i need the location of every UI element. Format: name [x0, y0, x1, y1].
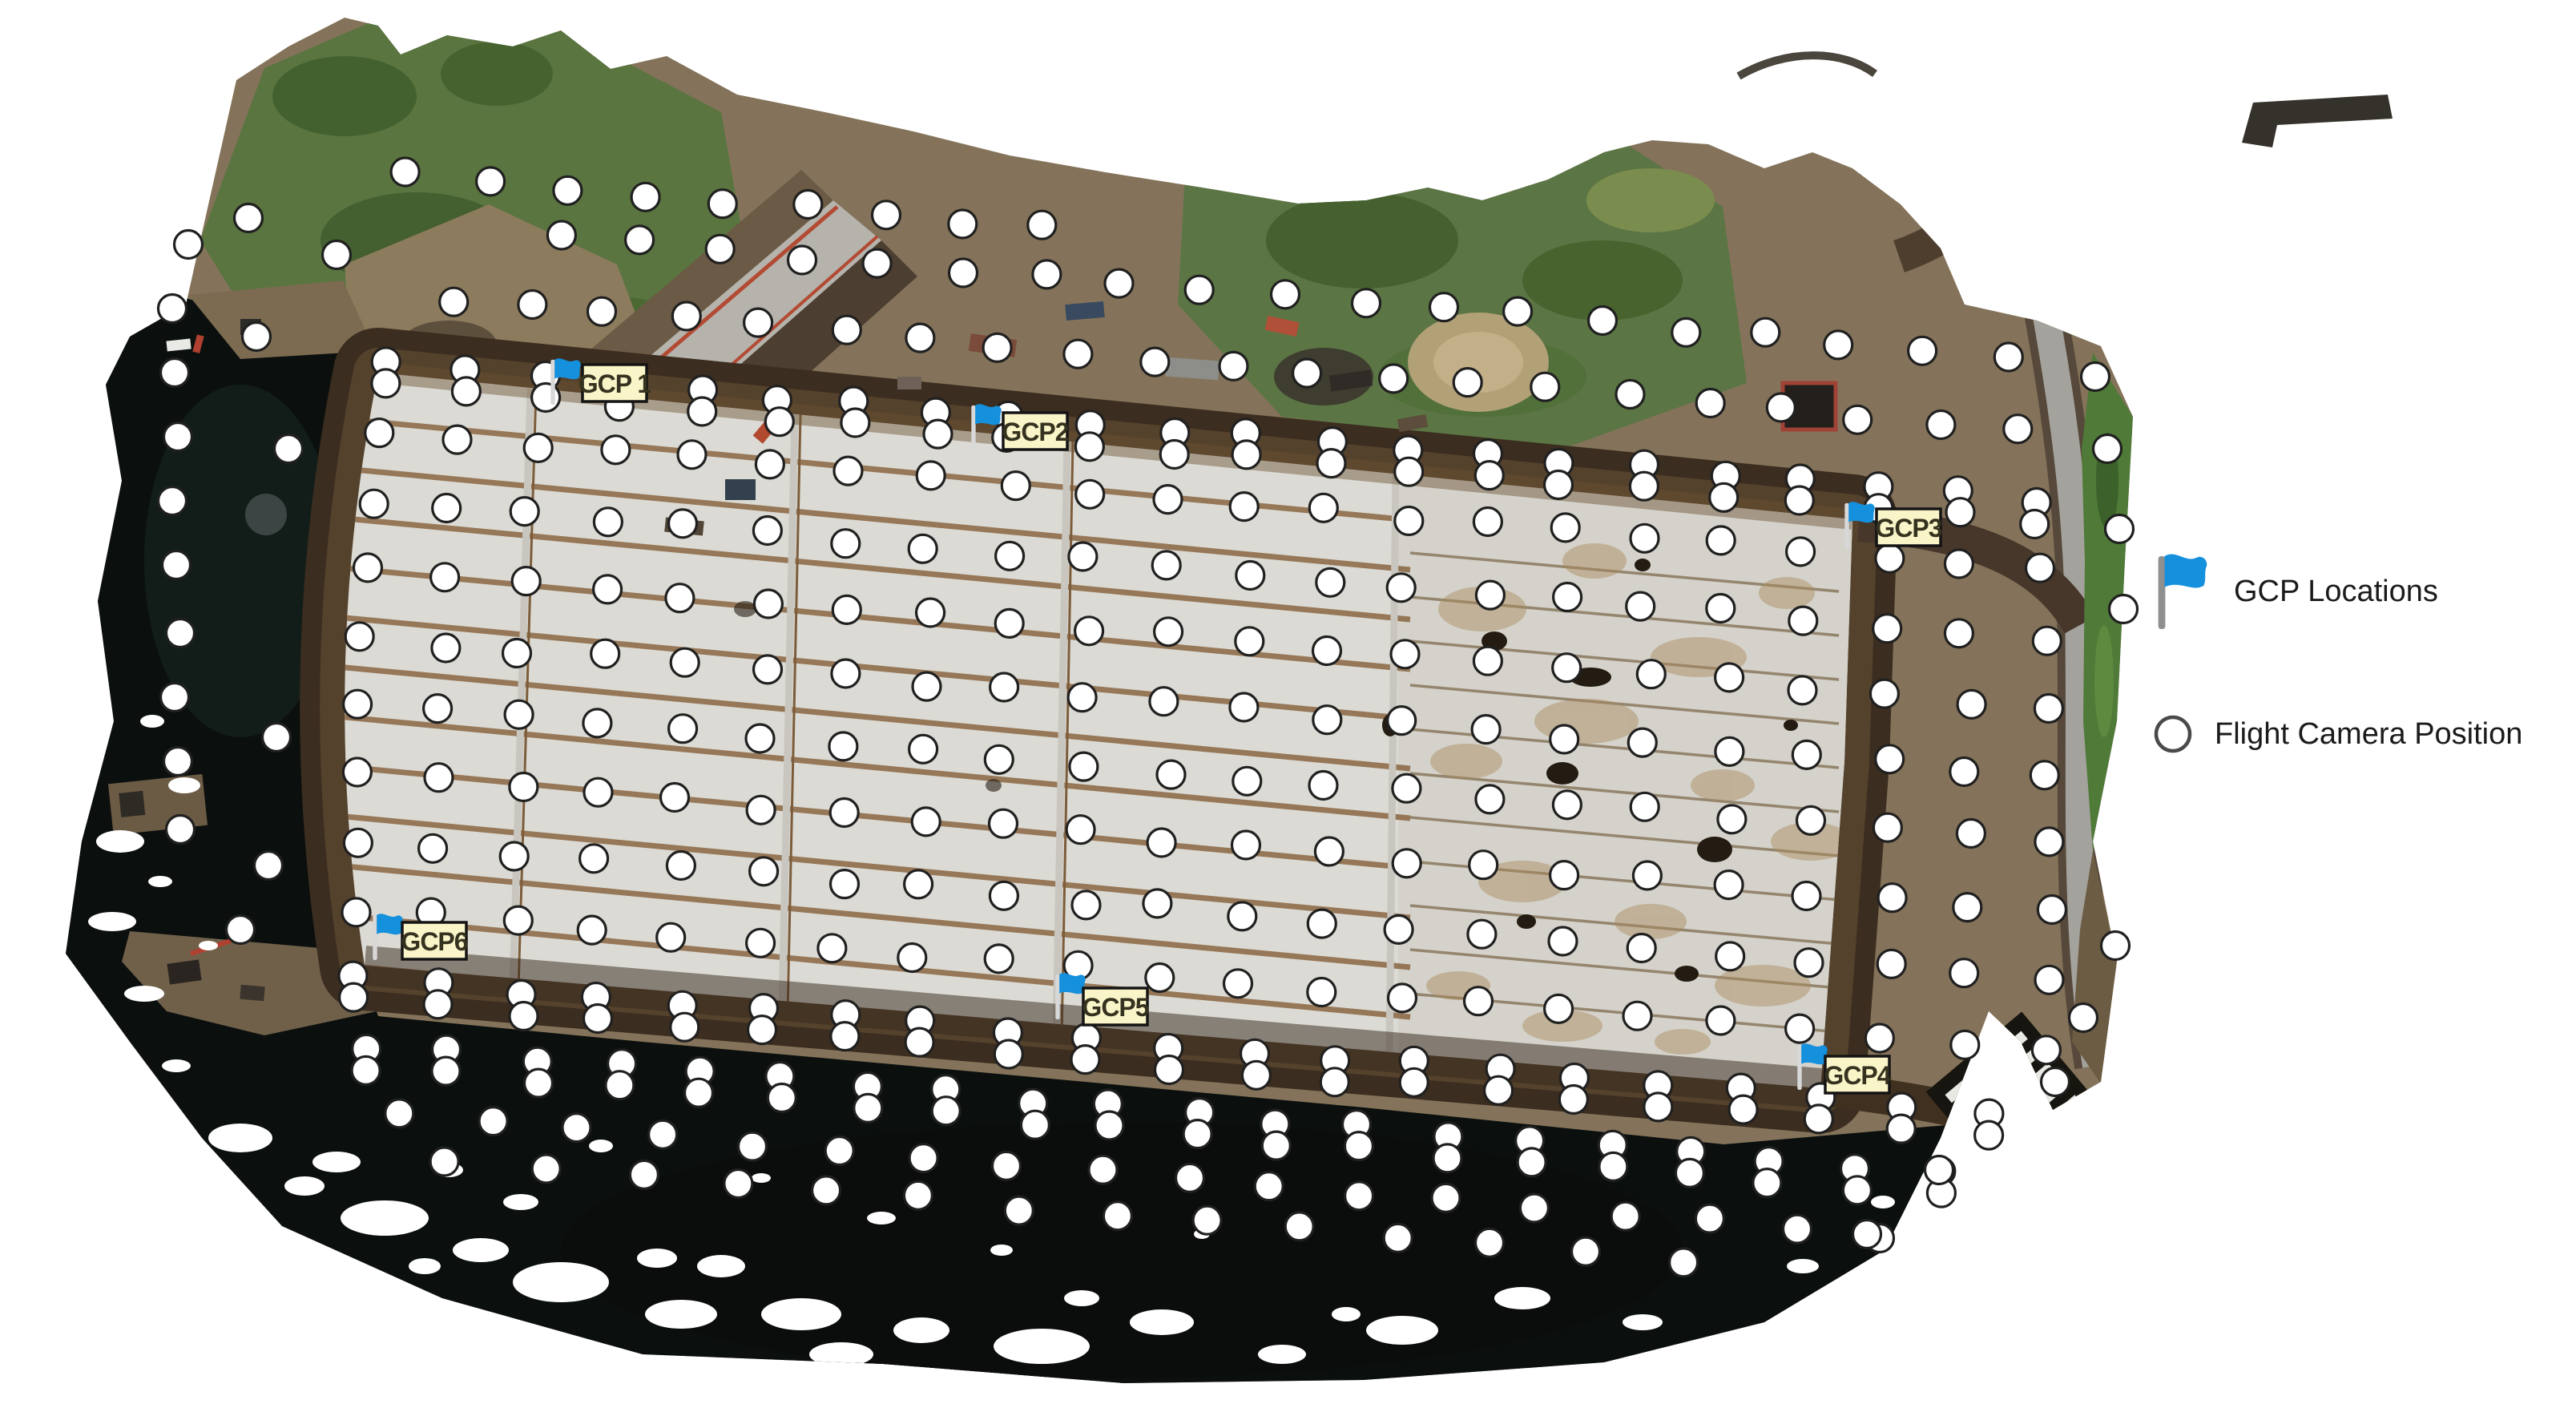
camera-position-marker: [788, 246, 816, 274]
camera-position-marker: [2030, 761, 2058, 789]
camera-position-marker: [1878, 884, 1906, 912]
camera-position-marker: [1710, 483, 1738, 511]
camera-position-marker: [1468, 920, 1496, 948]
camera-position-marker: [1925, 1156, 1953, 1184]
gcp-label: GCP5: [1082, 993, 1148, 1022]
camera-position-marker: [671, 1013, 699, 1041]
camera-position-marker: [631, 183, 659, 211]
camera-position-marker: [365, 419, 393, 447]
camera-position-marker: [1308, 910, 1336, 938]
camera-position-marker: [1957, 820, 1985, 848]
camera-position-marker: [1255, 1172, 1283, 1200]
camera-position-marker: [161, 359, 189, 387]
camera-position-marker: [1786, 1015, 1814, 1043]
camera-position-marker: [1545, 471, 1573, 499]
camera-position-marker: [863, 249, 891, 277]
gcp-label: GCP4: [1824, 1061, 1891, 1090]
camera-position-marker: [1945, 619, 1973, 648]
camera-position-marker: [1072, 891, 1100, 919]
camera-position-marker: [1272, 280, 1300, 309]
camera-position-marker: [554, 176, 582, 204]
camera-position-marker: [2102, 932, 2130, 960]
camera-position-marker: [1520, 1194, 1548, 1222]
camera-position-marker: [1873, 813, 1901, 841]
camera-position-marker: [990, 882, 1018, 910]
camera-position-marker: [832, 316, 861, 344]
camera-position-marker: [1876, 544, 1904, 572]
camera-position-marker: [1183, 1120, 1211, 1148]
camera-position-marker: [993, 1152, 1021, 1180]
camera-position-marker: [671, 648, 699, 676]
camera-position-marker: [1631, 524, 1659, 552]
camera-position-marker: [505, 700, 533, 728]
camera-position-marker: [1473, 508, 1502, 536]
camera-position-marker: [1400, 1068, 1428, 1096]
camera-position-marker: [167, 816, 195, 844]
camera-position-marker: [1670, 1249, 1698, 1277]
gcp-label: GCP2: [1002, 418, 1068, 446]
camera-position-marker: [235, 204, 263, 232]
camera-position-marker: [562, 1114, 591, 1142]
camera-position-marker: [649, 1120, 677, 1148]
camera-position-marker: [1909, 337, 1937, 365]
camera-position-marker: [500, 842, 528, 870]
camera-position-marker: [831, 1023, 859, 1051]
camera-position-marker: [1317, 450, 1345, 478]
camera-position-marker: [275, 435, 303, 463]
camera-position-marker: [746, 724, 774, 752]
camera-position-marker: [1185, 276, 1213, 304]
camera-position-marker: [832, 530, 860, 558]
camera-position-marker: [678, 441, 706, 469]
camera-position-marker: [818, 934, 846, 962]
camera-position-marker: [832, 660, 860, 688]
orthomosaic-map: GCP 1GCP2GCP3GCP4GCP5GCP6: [0, 0, 2576, 1408]
camera-position-marker: [1753, 1169, 1781, 1197]
camera-position-marker: [1545, 994, 1573, 1023]
camera-position-marker: [1716, 942, 1744, 970]
camera-position-marker: [1313, 706, 1341, 734]
camera-position-marker: [580, 845, 608, 873]
camera-position-marker: [909, 1144, 937, 1172]
camera-position-marker: [1473, 647, 1502, 675]
camera-position-marker: [344, 829, 372, 857]
camera-position-marker: [510, 1003, 538, 1031]
camera-position-marker: [1068, 684, 1096, 712]
camera-position-marker: [913, 672, 941, 700]
camera-position-marker: [1395, 458, 1423, 486]
camera-position-marker: [1572, 1237, 1600, 1265]
camera-position-marker: [167, 619, 195, 648]
camera-position-marker: [1675, 1159, 1703, 1187]
camera-position-marker: [340, 983, 368, 1011]
camera-position-marker: [1316, 568, 1344, 596]
camera-position-marker: [1309, 494, 1337, 522]
camera-position-marker: [748, 1016, 776, 1044]
camera-position-marker: [432, 634, 460, 662]
camera-position-marker: [1707, 1007, 1735, 1035]
camera-position-marker: [898, 944, 926, 972]
camera-position-marker: [159, 487, 187, 515]
camera-position-marker: [1095, 1111, 1123, 1140]
camera-position-marker: [657, 923, 685, 951]
camera-position-marker: [990, 809, 1018, 837]
camera-position-marker: [666, 584, 694, 612]
camera-position-marker: [391, 158, 419, 186]
camera-position-marker: [906, 324, 934, 352]
camera-position-marker: [1309, 772, 1337, 800]
camera-position-marker: [161, 684, 189, 712]
camera-position-marker: [255, 852, 283, 880]
camera-position-marker: [1797, 806, 1825, 834]
gcp-flag-icon: [2149, 551, 2218, 631]
camera-position-marker: [1792, 882, 1820, 910]
mosaic-fragment: [1739, 55, 1875, 76]
camera-position-marker: [2106, 515, 2134, 543]
camera-position-marker: [1975, 1121, 2003, 1149]
camera-position-marker: [1021, 1111, 1049, 1139]
camera-position-marker: [1242, 1061, 1270, 1089]
camera-position-marker: [1707, 526, 1735, 555]
camera-position-marker: [706, 235, 734, 263]
camera-position-marker: [1389, 984, 1417, 1012]
camera-position-marker: [747, 796, 775, 824]
camera-position-marker: [1150, 688, 1178, 716]
camera-position-marker: [431, 563, 459, 591]
camera-position-marker: [243, 323, 271, 351]
camera-position-marker: [747, 929, 775, 957]
camera-position-marker: [768, 1084, 796, 1112]
camera-position-marker: [1315, 837, 1343, 865]
camera-position-marker: [1785, 486, 1813, 514]
camera-position-marker: [1230, 693, 1258, 721]
camera-position-marker: [841, 409, 869, 437]
camera-position-marker: [1672, 318, 1700, 346]
camera-position-marker: [532, 1155, 560, 1183]
camera-position-marker: [1160, 441, 1188, 469]
camera-position-marker: [1147, 829, 1175, 857]
gcp-label: GCP 1: [578, 369, 651, 398]
camera-position-marker: [424, 695, 452, 723]
camera-position-marker: [1844, 405, 1872, 434]
camera-position-marker: [661, 784, 689, 812]
camera-position-marker: [2004, 415, 2032, 443]
camera-position-marker: [583, 709, 611, 737]
camera-position-marker: [708, 190, 736, 218]
camera-position-marker: [477, 167, 505, 196]
camera-position-marker: [744, 309, 772, 337]
camera-position-marker: [1870, 680, 1898, 708]
legend-gcp-label: GCP Locations: [2234, 575, 2438, 609]
camera-position-marker: [503, 639, 531, 668]
camera-position-marker: [995, 609, 1023, 637]
legend-camera-label: Flight Camera Position: [2215, 717, 2522, 752]
camera-position-marker: [834, 457, 862, 485]
camera-position-marker: [1345, 1182, 1373, 1210]
camera-position-marker: [1788, 676, 1816, 704]
camera-position-marker: [2021, 510, 2049, 539]
camera-position-marker: [1550, 861, 1578, 890]
camera-position-marker: [1707, 595, 1735, 623]
camera-position-marker: [1795, 949, 1823, 977]
camera-position-marker: [1069, 543, 1097, 571]
camera-position-marker: [1637, 660, 1665, 688]
camera-position-marker: [1469, 851, 1498, 879]
camera-position-marker: [1028, 211, 1056, 239]
camera-position-marker: [163, 551, 191, 579]
camera-position-marker: [917, 599, 945, 627]
camera-position-marker: [2042, 1068, 2070, 1096]
camera-position-marker: [1064, 340, 1092, 368]
figure-canvas: GCP 1GCP2GCP3GCP4GCP5GCP6 GCP Locations …: [0, 0, 2576, 1408]
camera-position-marker: [1953, 894, 1981, 922]
camera-position-marker: [1950, 959, 1978, 987]
camera-position-marker: [1628, 728, 1656, 756]
camera-position-marker: [1472, 716, 1500, 744]
camera-position-marker: [1155, 1056, 1183, 1084]
camera-position-marker: [578, 916, 606, 944]
camera-position-marker: [985, 745, 1013, 773]
camera-position-marker: [1927, 411, 1955, 439]
camera-position-marker: [1695, 1204, 1723, 1233]
camera-position-marker: [685, 1079, 713, 1107]
camera-position-marker: [360, 490, 388, 518]
camera-position-marker: [831, 870, 859, 898]
camera-position-marker: [1228, 902, 1256, 930]
camera-position-marker: [345, 623, 373, 651]
camera-position-marker: [924, 420, 952, 448]
camera-position-marker: [739, 1132, 767, 1160]
camera-position-marker: [669, 715, 697, 743]
camera-position-marker: [1380, 365, 1408, 393]
camera-position-marker: [1155, 618, 1183, 646]
camera-position-marker: [440, 288, 468, 316]
camera-position-marker: [1504, 297, 1532, 325]
camera-position-marker: [1344, 1132, 1373, 1160]
camera-position-marker: [1071, 1046, 1099, 1074]
camera-position-marker: [512, 567, 540, 595]
camera-position-marker: [1644, 1093, 1672, 1121]
camera-position-marker: [996, 542, 1024, 570]
camera-position-marker: [854, 1094, 882, 1122]
camera-position-marker: [1843, 1176, 1871, 1204]
camera-position-marker: [1070, 752, 1098, 781]
camera-position-marker: [1433, 1144, 1461, 1172]
camera-position-marker: [594, 575, 622, 603]
camera-position-marker: [159, 295, 187, 323]
camera-position-marker: [909, 735, 937, 763]
camera-position-marker: [510, 498, 538, 526]
camera-position-marker: [1391, 640, 1419, 668]
camera-position-marker: [990, 673, 1018, 701]
camera-position-marker: [452, 377, 480, 405]
camera-position-marker: [1729, 1095, 1757, 1124]
camera-position-marker: [2110, 595, 2138, 623]
camera-position-marker: [532, 384, 560, 412]
camera-position-marker: [1787, 538, 1815, 566]
camera-position-marker: [1089, 1156, 1117, 1184]
camera-position-marker: [1393, 774, 1421, 802]
camera-position-marker: [1623, 1002, 1651, 1030]
camera-position-marker: [754, 656, 782, 684]
legend-item-camera: Flight Camera Position: [2152, 713, 2522, 755]
camera-position-marker: [985, 945, 1013, 973]
camera-position-marker: [1994, 343, 2022, 371]
camera-position-marker: [904, 1181, 932, 1209]
camera-position-marker: [765, 408, 793, 436]
camera-position-marker: [1353, 289, 1381, 317]
camera-position-marker: [1033, 260, 1061, 288]
camera-position-marker: [1853, 1220, 1881, 1249]
camera-position-marker: [829, 732, 857, 760]
camera-position-marker: [1236, 627, 1264, 656]
camera-position-marker: [754, 590, 782, 618]
camera-position-marker: [1224, 970, 1252, 998]
camera-position-marker: [626, 226, 654, 254]
gcp-label: GCP3: [1875, 514, 1941, 543]
camera-position-marker: [1792, 740, 1820, 769]
camera-position-marker: [1627, 934, 1655, 962]
camera-position-marker: [2035, 828, 2063, 856]
camera-position-marker: [1385, 915, 1413, 943]
camera-position-marker: [909, 535, 937, 563]
camera-position-marker: [164, 748, 192, 776]
camera-position-marker: [518, 291, 546, 319]
camera-position-marker: [1767, 393, 1795, 422]
camera-position-marker: [1951, 1031, 1979, 1059]
camera-position-marker: [1715, 737, 1744, 765]
camera-position-marker: [1293, 359, 1321, 387]
camera-position-marker: [323, 241, 351, 269]
camera-position-marker: [1789, 607, 1817, 635]
camera-position-marker: [2033, 627, 2061, 655]
camera-position-marker: [1549, 927, 1577, 955]
mosaic-fragment: [2242, 95, 2393, 147]
camera-position-marker: [756, 450, 784, 478]
camera-position-marker: [1945, 550, 1973, 578]
camera-position-marker: [1232, 831, 1260, 859]
camera-position-marker: [1950, 758, 1978, 786]
camera-position-marker: [1141, 348, 1169, 376]
camera-position-marker: [1633, 861, 1661, 890]
camera-position-marker: [1696, 389, 1724, 418]
camera-position-marker: [672, 302, 700, 330]
camera-position-marker: [1752, 318, 1780, 346]
camera-position-marker: [2070, 1004, 2098, 1032]
camera-position-marker: [1554, 583, 1582, 611]
camera-position-marker: [1599, 1152, 1627, 1180]
camera-position-marker: [1611, 1202, 1639, 1230]
camera-position-marker: [1476, 1228, 1504, 1257]
camera-position-marker: [263, 724, 291, 752]
camera-position-marker: [2032, 1036, 2060, 1064]
camera-position-marker: [1718, 805, 1746, 833]
camera-position-marker: [1589, 307, 1617, 335]
camera-position-marker: [750, 857, 778, 886]
camera-position-marker: [602, 436, 630, 464]
camera-position-marker: [430, 1148, 458, 1176]
camera-position-marker: [1476, 785, 1504, 813]
camera-position-marker: [1393, 849, 1421, 877]
camera-position-marker: [1784, 1215, 1812, 1243]
camera-position-marker: [825, 1137, 853, 1165]
camera-position-marker: [1715, 664, 1744, 692]
camera-position-marker: [584, 778, 612, 806]
camera-position-marker: [1550, 725, 1578, 753]
camera-position-marker: [949, 259, 978, 287]
camera-position-marker: [1876, 745, 1904, 773]
camera-position-marker: [425, 764, 453, 792]
camera-position-marker: [1475, 462, 1503, 490]
camera-position-marker: [1285, 1212, 1313, 1241]
camera-position-marker: [1553, 791, 1581, 819]
camera-position-marker: [1146, 964, 1174, 992]
camera-position-marker: [1627, 592, 1655, 620]
camera-position-marker: [1715, 871, 1743, 899]
camera-position-marker: [1075, 433, 1103, 461]
camera-position-marker: [352, 1056, 380, 1084]
camera-position-marker: [1631, 793, 1659, 821]
camera-position-marker: [1453, 369, 1482, 397]
camera-position-marker: [1387, 574, 1415, 602]
camera-position-marker: [479, 1107, 507, 1136]
camera-position-marker: [1308, 978, 1336, 1007]
camera-position-marker: [524, 434, 552, 462]
camera-position-marker: [667, 852, 695, 880]
camera-position-marker: [424, 990, 452, 1019]
camera-position-marker: [630, 1160, 658, 1188]
camera-position-marker: [1551, 514, 1579, 542]
camera-position-marker: [1076, 480, 1104, 508]
camera-position-marker: [1465, 987, 1493, 1015]
camera-position-marker: [342, 898, 370, 926]
camera-position-marker: [606, 1071, 634, 1099]
camera-position-marker: [433, 494, 461, 522]
camera-position-marker: [1152, 551, 1180, 579]
camera-position-marker: [932, 1097, 960, 1125]
camera-position-marker: [510, 773, 538, 801]
camera-position-marker: [917, 462, 945, 490]
legend-item-gcp: GCP Locations: [2149, 551, 2438, 631]
camera-position-marker: [994, 1040, 1022, 1068]
camera-position-marker: [1388, 707, 1416, 735]
gcp-label: GCP6: [401, 927, 467, 956]
camera-position-marker: [2038, 896, 2066, 924]
camera-position-marker: [164, 423, 192, 451]
camera-position-marker: [832, 595, 861, 623]
camera-position-marker: [525, 1069, 553, 1097]
camera-position-marker: [1005, 1196, 1033, 1224]
camera-position-marker: [175, 231, 203, 259]
camera-position-marker: [983, 333, 1011, 361]
camera-position-marker: [1320, 1068, 1348, 1096]
camera-position-marker: [2026, 554, 2054, 582]
camera-position-marker: [812, 1176, 841, 1204]
camera-position-marker: [1430, 293, 1458, 321]
camera-position-marker: [1559, 1086, 1587, 1114]
camera-position-marker: [1262, 1132, 1290, 1160]
camera-position-marker: [227, 916, 255, 944]
camera-position-marker: [1313, 637, 1341, 665]
camera-position-marker: [1476, 581, 1504, 609]
camera-position-marker: [1531, 373, 1559, 401]
camera-position-marker: [1236, 562, 1264, 590]
camera-position-marker: [372, 369, 400, 397]
camera-position-marker: [1230, 493, 1258, 521]
camera-position-marker: [1193, 1206, 1221, 1234]
camera-position-marker: [344, 690, 372, 718]
camera-position-marker: [753, 517, 781, 545]
